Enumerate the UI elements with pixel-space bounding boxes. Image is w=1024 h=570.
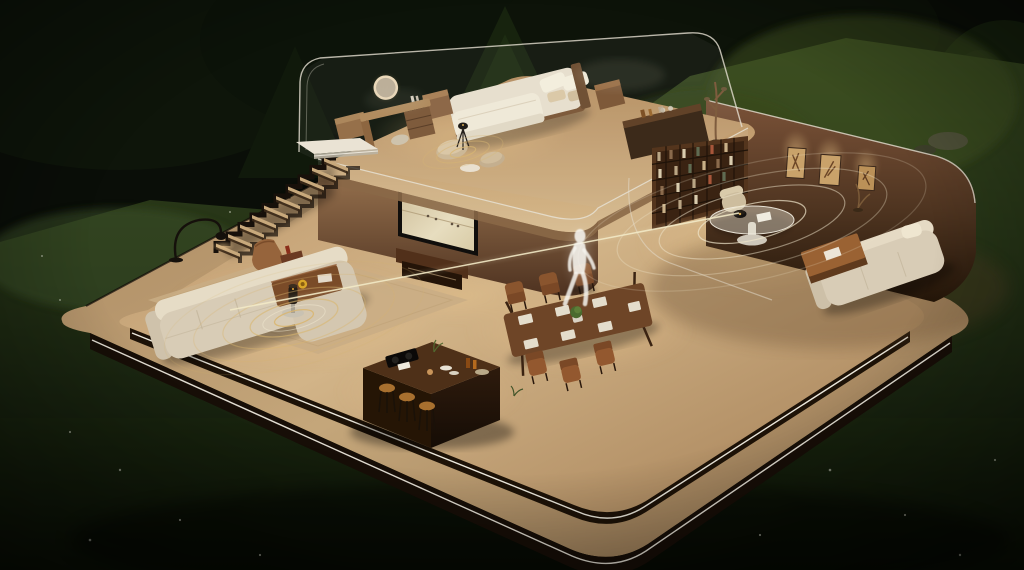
smart-home-scene bbox=[0, 0, 1024, 570]
vignette-overlay bbox=[0, 0, 1024, 570]
render-canvas bbox=[0, 0, 1024, 570]
